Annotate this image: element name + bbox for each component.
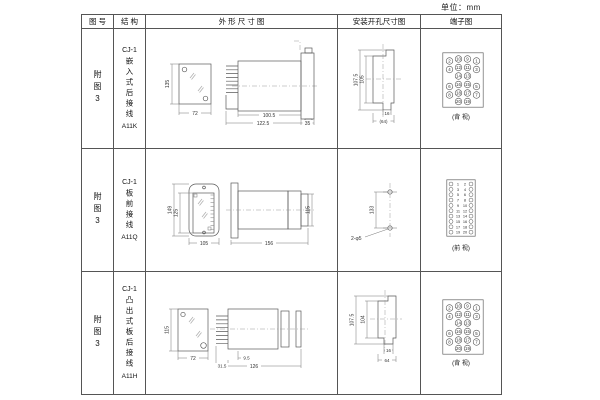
- svg-text:2-φ5: 2-φ5: [351, 236, 362, 242]
- svg-text:2: 2: [464, 182, 466, 187]
- structure-cell-a11h: CJ-1 凸出式板后接线 A11H: [114, 272, 146, 394]
- svg-text:9: 9: [457, 203, 459, 208]
- figure-no-cell-a11q: 附图3: [82, 149, 114, 272]
- outline-cell-a11h: 115 72 9.5 31.5: [146, 272, 338, 394]
- terminal-cell-a11h: 2109141211314136161558181772019 (背 视): [421, 272, 501, 394]
- svg-text:8: 8: [448, 93, 451, 98]
- outline-drawing-a11h: 115 72 9.5 31.5: [146, 272, 338, 394]
- structure-cell-a11k: CJ-1 嵌入式后接线 A11K: [114, 29, 146, 149]
- model-code: A11H: [122, 373, 138, 380]
- svg-text:9: 9: [466, 304, 469, 309]
- terminal-view-label: (背 视): [421, 358, 501, 367]
- svg-text:7: 7: [475, 93, 478, 98]
- structure-desc: 嵌入式后接线: [124, 57, 135, 120]
- svg-text:17: 17: [465, 91, 470, 96]
- svg-text:35: 35: [305, 121, 311, 127]
- svg-text:64: 64: [384, 358, 390, 363]
- svg-text:2: 2: [448, 306, 451, 311]
- svg-text:(64): (64): [379, 119, 388, 124]
- svg-text:19: 19: [465, 99, 470, 104]
- svg-text:5: 5: [457, 192, 459, 197]
- figure-no-text: 附图3: [92, 70, 103, 107]
- svg-text:100.5: 100.5: [263, 113, 276, 119]
- install-cell-a11h: 107.5 104 16 64: [338, 272, 421, 394]
- svg-text:125: 125: [174, 209, 180, 218]
- svg-text:14: 14: [456, 321, 461, 326]
- header-outline: 外 形 尺 寸 图: [146, 15, 338, 29]
- svg-text:12: 12: [463, 208, 467, 213]
- svg-text:13: 13: [465, 74, 470, 79]
- svg-text:16: 16: [386, 348, 392, 353]
- svg-text:4: 4: [464, 187, 467, 192]
- svg-text:18: 18: [456, 91, 461, 96]
- svg-text:72: 72: [192, 111, 198, 117]
- svg-text:135: 135: [165, 80, 171, 89]
- svg-text:115: 115: [306, 206, 312, 214]
- model-text: CJ-1: [122, 47, 137, 54]
- side-view: 115 156: [226, 183, 316, 247]
- header-terminal: 端子图: [421, 15, 501, 29]
- svg-text:18: 18: [463, 224, 467, 229]
- outline-cell-a11q: 149 125 105 115 156: [146, 149, 338, 272]
- svg-text:3: 3: [457, 187, 459, 192]
- svg-text:115: 115: [165, 326, 171, 334]
- figure-no-cell-a11h: 附图3: [82, 272, 114, 394]
- svg-text:16: 16: [463, 219, 467, 224]
- front-view: 135 72: [165, 64, 211, 117]
- svg-text:4: 4: [448, 314, 451, 319]
- front-view: 149 125 105: [168, 184, 220, 247]
- svg-text:12: 12: [456, 312, 461, 317]
- svg-text:1: 1: [457, 182, 459, 187]
- svg-text:16: 16: [384, 111, 390, 116]
- model-text: CJ-1: [122, 179, 137, 186]
- side-view: 100.5 122.5 35: [226, 41, 318, 127]
- svg-text:11: 11: [465, 65, 470, 70]
- svg-text:105: 105: [200, 241, 209, 247]
- svg-text:122.5: 122.5: [257, 121, 270, 127]
- spec-sheet-page: 单位：mm 图 号 结 构 外 形 尺 寸 图 安装开孔尺寸图 端子图 附图3 …: [0, 0, 600, 400]
- svg-text:126: 126: [250, 364, 259, 370]
- figure-no-text: 附图3: [92, 315, 103, 352]
- svg-text:8: 8: [464, 198, 466, 203]
- svg-text:7: 7: [475, 340, 478, 345]
- unit-label: 单位：mm: [441, 2, 481, 13]
- install-drawing-a11q: 133 2-φ5: [338, 149, 421, 272]
- svg-text:15: 15: [456, 219, 460, 224]
- structure-desc: 板前接线: [124, 189, 135, 231]
- outline-cell-a11k: 135 72 100.5: [146, 29, 338, 149]
- svg-text:14: 14: [463, 214, 468, 219]
- svg-text:7: 7: [457, 198, 459, 203]
- structure-desc: 凸出式板后接线: [124, 296, 135, 370]
- svg-text:9: 9: [466, 57, 469, 62]
- figure-no-cell-a11k: 附图3: [82, 29, 114, 149]
- svg-text:16: 16: [456, 329, 461, 334]
- svg-text:6: 6: [448, 84, 451, 89]
- svg-text:1: 1: [475, 306, 478, 311]
- front-view: 115 72: [165, 309, 209, 362]
- svg-text:2: 2: [448, 59, 451, 64]
- side-view: 9.5 31.5 126: [210, 309, 308, 370]
- header-figure-no: 图 号: [82, 15, 114, 29]
- svg-text:19: 19: [465, 346, 470, 351]
- svg-text:20: 20: [456, 346, 461, 351]
- svg-text:6: 6: [448, 331, 451, 336]
- install-drawing-a11k: 107.5 105 16 (64): [338, 29, 421, 149]
- svg-text:16: 16: [456, 82, 461, 87]
- header-structure: 结 构: [114, 15, 146, 29]
- svg-text:3: 3: [475, 67, 478, 72]
- svg-text:9.5: 9.5: [243, 356, 250, 361]
- svg-text:17: 17: [456, 224, 460, 229]
- svg-text:156: 156: [265, 241, 274, 247]
- svg-text:5: 5: [475, 331, 478, 336]
- svg-text:10: 10: [456, 304, 461, 309]
- model-code: A11K: [122, 123, 137, 130]
- outline-drawing-a11q: 149 125 105 115 156: [146, 149, 338, 272]
- outline-drawing-a11k: 135 72 100.5: [146, 29, 338, 149]
- svg-text:13: 13: [456, 214, 460, 219]
- terminal-view-label: (前 视): [421, 243, 501, 252]
- spec-table: 图 号 结 构 外 形 尺 寸 图 安装开孔尺寸图 端子图 附图3 CJ-1 嵌…: [81, 14, 502, 395]
- figure-no-text: 附图3: [92, 192, 103, 229]
- svg-text:104: 104: [361, 315, 367, 324]
- svg-text:11: 11: [465, 312, 470, 317]
- svg-text:20: 20: [463, 230, 468, 235]
- svg-text:5: 5: [475, 84, 478, 89]
- header-install: 安装开孔尺寸图: [338, 15, 421, 29]
- model-code: A11Q: [121, 234, 137, 241]
- svg-text:4: 4: [448, 67, 451, 72]
- svg-text:15: 15: [465, 329, 470, 334]
- svg-text:6: 6: [464, 192, 466, 197]
- svg-text:11: 11: [456, 208, 460, 213]
- svg-text:1: 1: [475, 59, 478, 64]
- svg-text:19: 19: [456, 230, 460, 235]
- svg-text:31.5: 31.5: [218, 364, 227, 369]
- svg-text:72: 72: [190, 356, 196, 362]
- terminal-view-label: (背 视): [421, 112, 501, 121]
- svg-text:105: 105: [360, 75, 366, 84]
- svg-text:10: 10: [463, 203, 468, 208]
- svg-text:20: 20: [456, 99, 461, 104]
- svg-text:12: 12: [456, 65, 461, 70]
- install-cell-a11k: 107.5 105 16 (64): [338, 29, 421, 149]
- svg-text:15: 15: [465, 82, 470, 87]
- model-text: CJ-1: [122, 286, 137, 293]
- svg-text:14: 14: [456, 74, 461, 79]
- terminal-cell-a11q: 1234567891011121314151617181920 (前 视): [421, 149, 501, 272]
- svg-text:3: 3: [475, 314, 478, 319]
- install-cell-a11q: 133 2-φ5: [338, 149, 421, 272]
- svg-text:13: 13: [465, 321, 470, 326]
- svg-text:18: 18: [456, 338, 461, 343]
- install-drawing-a11h: 107.5 104 16 64: [338, 272, 421, 394]
- structure-cell-a11q: CJ-1 板前接线 A11Q: [114, 149, 146, 272]
- terminal-cell-a11k: 2109141211314136161558181772019 (背 视): [421, 29, 501, 149]
- svg-text:17: 17: [465, 338, 470, 343]
- svg-text:10: 10: [456, 57, 461, 62]
- svg-text:133: 133: [370, 206, 376, 215]
- svg-text:107.5: 107.5: [350, 314, 356, 327]
- svg-text:8: 8: [448, 340, 451, 345]
